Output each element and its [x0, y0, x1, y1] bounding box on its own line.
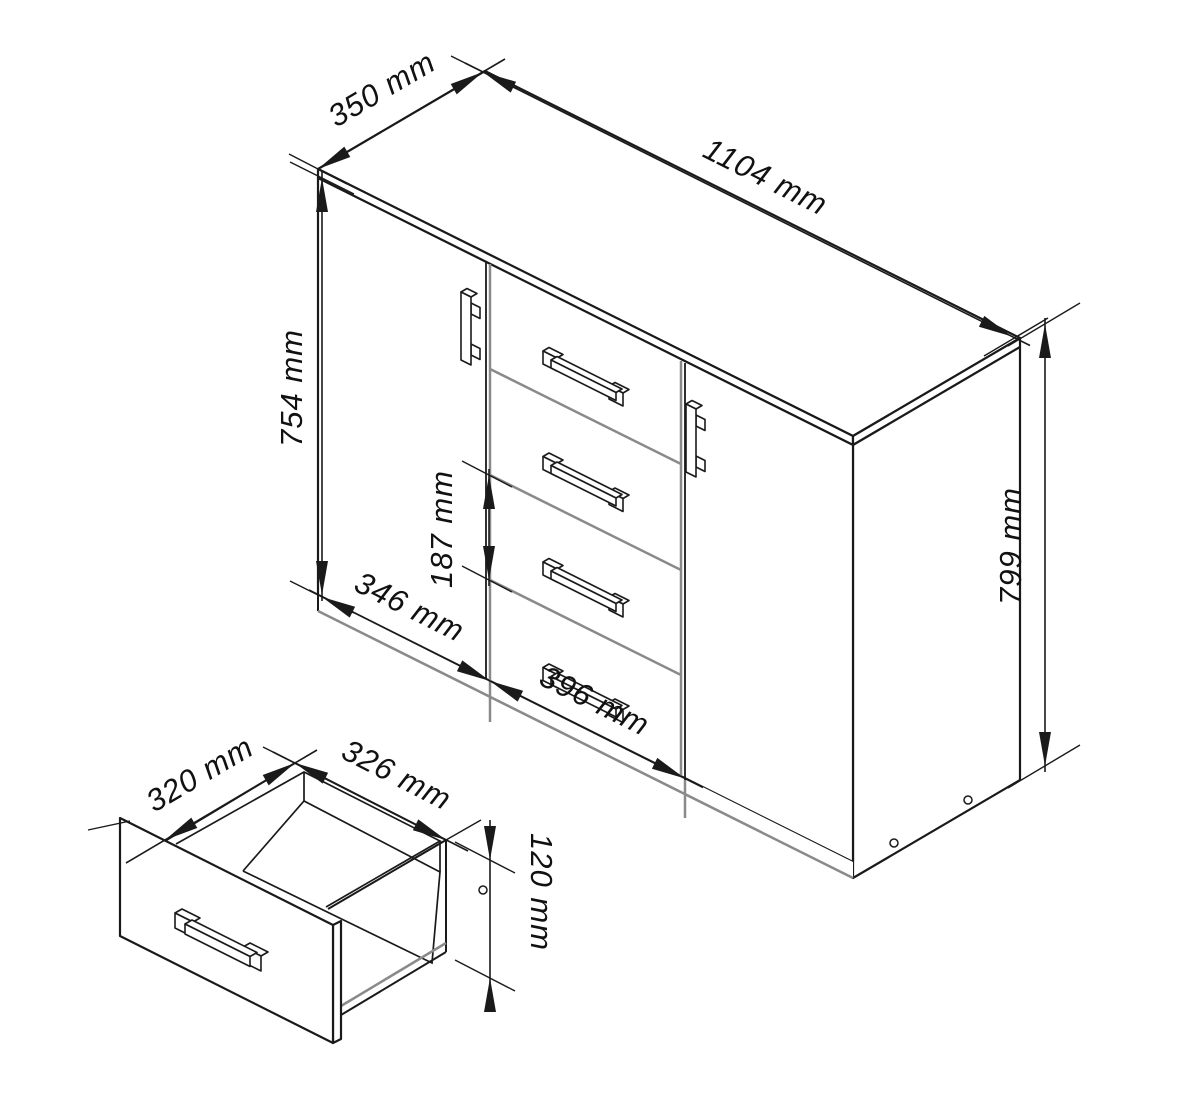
ext-line: [455, 842, 515, 873]
arrowhead: [1039, 732, 1051, 766]
arrowhead: [484, 978, 496, 1012]
side-panel-hole-2: [964, 796, 972, 804]
arrowhead: [1039, 324, 1051, 358]
technical-drawing-svg: 350 mm 1104 mm 754 mm 799 mm: [0, 0, 1200, 1108]
drawer-side-hole: [479, 886, 487, 894]
dim-drawer-front-height: 120 mm: [455, 820, 559, 1012]
arrowhead: [484, 826, 496, 860]
side-panel-hole-1: [890, 839, 898, 847]
drawer-front-panel-side: [333, 921, 341, 1043]
dim-cabinet-height-label: 799 mm: [993, 487, 1028, 605]
drawing-canvas: 350 mm 1104 mm 754 mm 799 mm: [0, 0, 1200, 1108]
dim-door-height-label: 754 mm: [274, 329, 309, 447]
ext-line: [455, 960, 515, 991]
dim-drawer-pitch-label: 187 mm: [424, 470, 459, 588]
dim-drawer-front-height-label: 120 mm: [524, 833, 559, 951]
